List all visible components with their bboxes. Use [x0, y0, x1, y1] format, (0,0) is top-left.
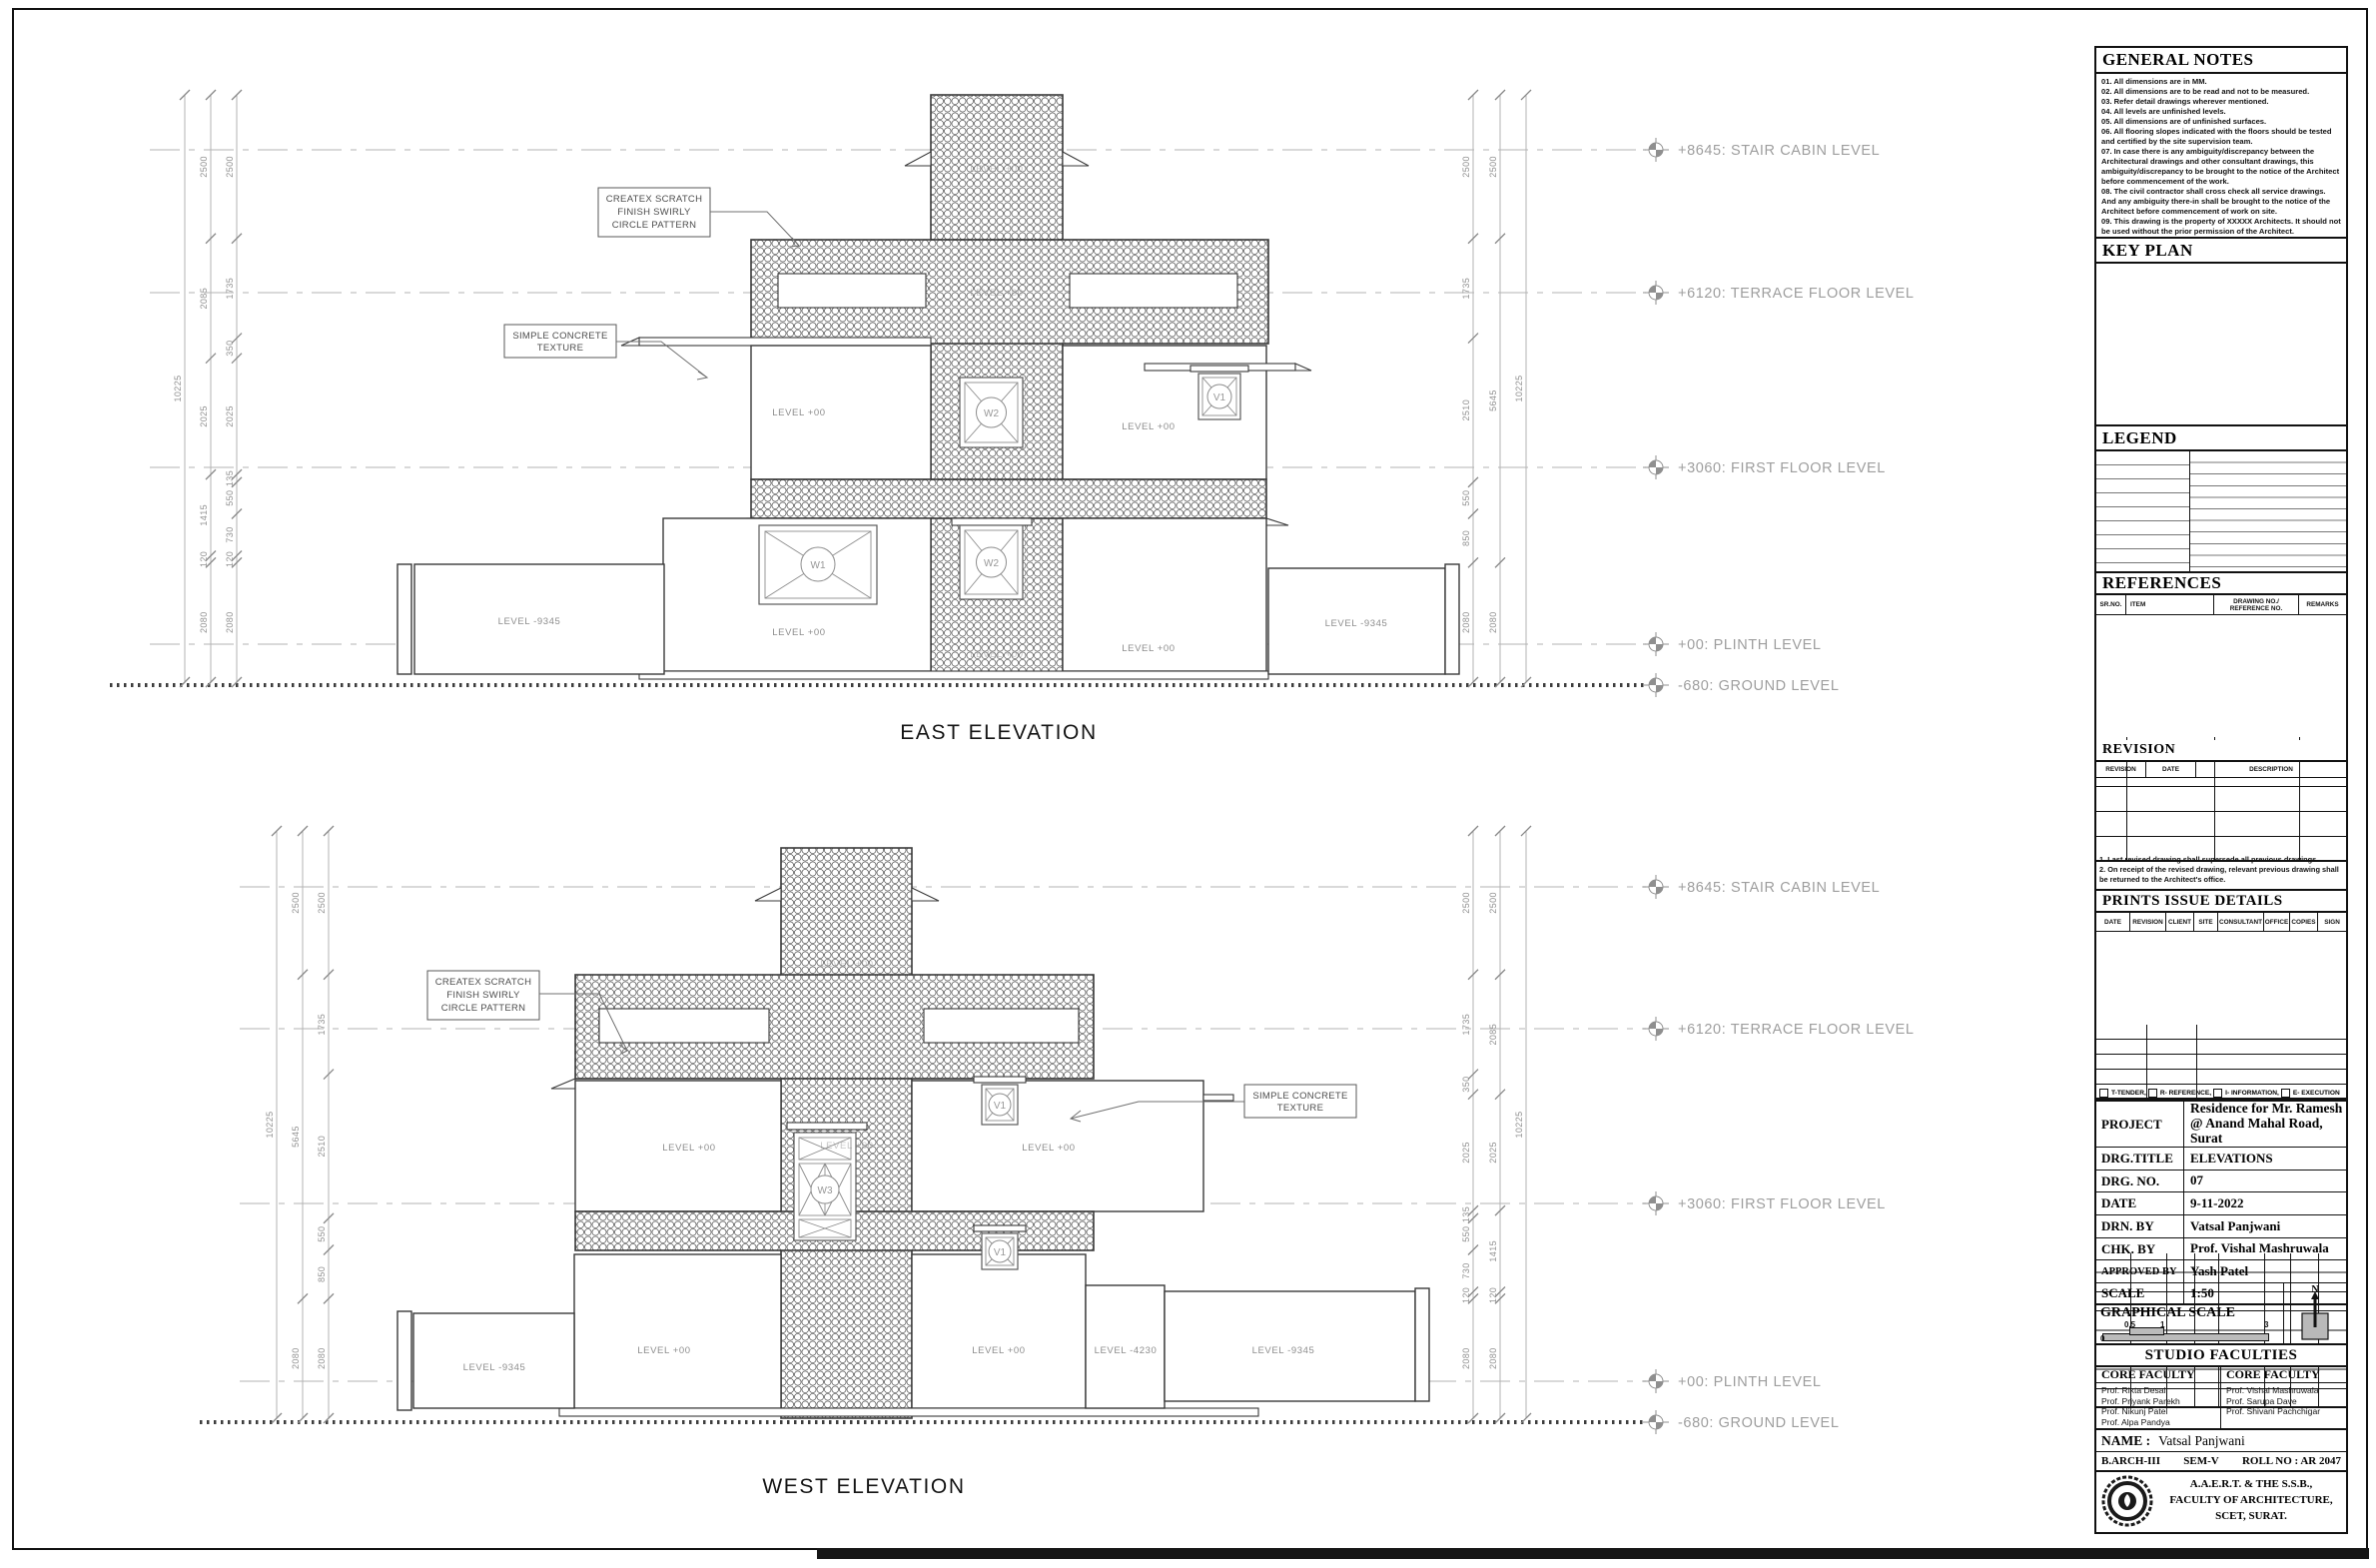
faculty-name: Prof. Sarupa Dave [2226, 1396, 2346, 1407]
section-title: PRINTS ISSUE DETAILS [2102, 893, 2283, 910]
institute-logo [2098, 1473, 2156, 1529]
svg-text:120: 120 [225, 551, 235, 567]
east-level-label: LEVEL +00 [772, 627, 825, 638]
sem-label: SEM-V [2183, 1455, 2218, 1467]
west-level-label: LEVEL +00 [662, 1143, 715, 1154]
field-label: DATE [2096, 1192, 2184, 1214]
drawing-sheet: 10225 25002085202514151202080 2500173535… [0, 0, 2376, 1568]
svg-text:10225: 10225 [265, 1111, 275, 1138]
legend-table [2096, 451, 2346, 573]
note-line: 03. Refer detail drawings wherever menti… [2101, 97, 2342, 107]
col-header: REMARKS [2299, 595, 2346, 614]
svg-text:10225: 10225 [173, 375, 183, 401]
svg-text:550: 550 [225, 490, 235, 506]
project-row: PROJECT Residence for Mr. Ramesh @ Anand… [2096, 1102, 2346, 1148]
west-marker-first-floor: +3060: FIRST FLOOR LEVEL [1643, 1191, 1886, 1215]
svg-text:2510: 2510 [317, 1136, 327, 1158]
studio-faculties-body: CORE FACULTY Prof. Rikta Desai Prof. Pri… [2096, 1367, 2346, 1430]
east-createx-annotation: CREATEX SCRATCH FINISH SWIRLY CIRCLE PAT… [598, 188, 799, 247]
approved-by-row: APPROVED BY Yash Patel [2096, 1260, 2346, 1283]
svg-text:10225: 10225 [1514, 375, 1524, 401]
east-tower-label: LEVEL +00 [970, 649, 1023, 660]
svg-text:2500: 2500 [1488, 156, 1498, 178]
annotation-line: CREATEX SCRATCH [606, 194, 703, 205]
legend-header: LEGEND [2096, 426, 2346, 451]
svg-text:1415: 1415 [199, 504, 209, 526]
execution-checkbox[interactable] [2281, 1089, 2290, 1098]
field-value: 1:50 [2184, 1283, 2284, 1303]
studio-faculties-header: STUDIO FACULTIES [2096, 1345, 2346, 1367]
svg-text:2080: 2080 [1488, 611, 1498, 633]
field-label: DRN. BY [2096, 1215, 2184, 1237]
prints-column-headers: DATE REVISION CLIENT SITE CONSULTANT OFF… [2096, 913, 2346, 932]
east-tower-label: LEVEL +00 [970, 164, 1023, 175]
note-line: be returned to the Architect's office. [2099, 875, 2343, 885]
west-elevation: 10225 250056452080 250017352510550850208… [200, 826, 1915, 1498]
east-dim-right-outer: 10225 [1514, 90, 1531, 687]
col-header: DRAWING NO./ REFERENCE NO. [2214, 595, 2299, 614]
svg-text:2025: 2025 [1461, 1142, 1471, 1164]
west-level-label: LEVEL -9345 [1252, 1345, 1315, 1356]
col-header: ITEM [2126, 595, 2214, 614]
svg-text:350: 350 [1461, 1076, 1471, 1092]
issue-type-row: T-TENDER, R- REFERENCE, I- INFORMATION, … [2096, 1087, 2346, 1102]
annotation-line: CREATEX SCRATCH [435, 977, 532, 988]
note-line: 08. The civil contractor shall cross che… [2101, 187, 2342, 217]
graphical-scale-section: GRAPHICAL SCALE 0 0.5 1 3 N [2096, 1305, 2346, 1345]
west-marker-terrace: +6120: TERRACE FLOOR LEVEL [1643, 1017, 1915, 1041]
field-label: DRG. NO. [2096, 1171, 2184, 1191]
west-tower-label: LEVEL +00 [820, 959, 873, 970]
title-block: GENERAL NOTES 01. All dimensions are in … [2094, 46, 2348, 1534]
note-line: 06. All flooring slopes indicated with t… [2101, 127, 2342, 147]
prints-header: PRINTS ISSUE DETAILS [2096, 891, 2346, 913]
checkbox-label: R- REFERENCE, [2160, 1090, 2211, 1097]
svg-text:1735: 1735 [1461, 1014, 1471, 1036]
svg-text:1735: 1735 [1461, 278, 1471, 300]
west-ground-wall-left [574, 1254, 781, 1408]
institute-line: SCET, SURAT. [2156, 1509, 2346, 1525]
east-lintel-right-end [1266, 518, 1288, 525]
svg-text:+3060: FIRST FLOOR LEVEL: +3060: FIRST FLOOR LEVEL [1678, 1196, 1886, 1212]
elevation-drawings: 10225 25002085202514151202080 2500173535… [0, 0, 2082, 1568]
svg-text:730: 730 [1461, 1262, 1471, 1278]
west-terrace-opening-right [924, 1009, 1079, 1043]
col-header: DATE [2096, 913, 2130, 931]
svg-text:550: 550 [317, 1226, 327, 1242]
field-value: 07 [2184, 1171, 2346, 1191]
faculty-name: Prof. Vishal Mashruwala [2226, 1385, 2346, 1396]
revision-column-headers: REVISION DATE DESCRIPTION [2096, 762, 2346, 778]
svg-text:-680: GROUND LEVEL: -680: GROUND LEVEL [1678, 1415, 1840, 1431]
east-tower-label: LEVEL +00 [970, 288, 1023, 299]
west-terrace-opening-left [599, 1009, 769, 1043]
svg-text:+3060: FIRST FLOOR LEVEL: +3060: FIRST FLOOR LEVEL [1678, 460, 1886, 476]
east-dim-right-mid: 250056452080 [1488, 90, 1505, 687]
references-header: REFERENCES [2096, 573, 2346, 595]
drawn-by-row: DRN. BY Vatsal Panjwani [2096, 1215, 2346, 1238]
north-label: N [2311, 1284, 2318, 1295]
core-faculty-header: CORE FACULTY [2096, 1367, 2220, 1383]
west-dim-right-mid: 25002085202514151202080 [1488, 826, 1505, 1423]
annotation-line: SIMPLE CONCRETE [1252, 1091, 1347, 1102]
east-dim-left-outer: 10225 [173, 90, 190, 687]
east-chajja-left [639, 338, 931, 346]
west-level-label: LEVEL +00 [637, 1345, 690, 1356]
field-label: DRG.TITLE [2096, 1148, 2184, 1170]
east-elevation: 10225 25002085202514151202080 2500173535… [110, 90, 1915, 744]
faculty-name: Prof. Shivani Pachchigar [2226, 1406, 2346, 1417]
section-title: REFERENCES [2102, 573, 2221, 593]
svg-text:550: 550 [1461, 1226, 1471, 1242]
svg-text:2500: 2500 [199, 156, 209, 178]
svg-text:2080: 2080 [1461, 611, 1471, 633]
svg-text:120: 120 [1461, 1287, 1471, 1303]
svg-text:2025: 2025 [199, 405, 209, 427]
svg-text:2500: 2500 [1461, 156, 1471, 178]
field-value: Yash Patel [2184, 1260, 2346, 1282]
west-level-label: LEVEL +00 [1022, 1143, 1075, 1154]
svg-text:+6120: TERRACE FLOOR LEVEL: +6120: TERRACE FLOOR LEVEL [1678, 286, 1915, 302]
east-dim-right-inner: 2500173525105508502080 [1461, 90, 1478, 687]
scale-bar-lower [2102, 1333, 2269, 1341]
institute-row: A.A.E.R.T. & THE S.S.B., FACULTY OF ARCH… [2096, 1472, 2346, 1530]
svg-text:350: 350 [225, 340, 235, 356]
window-tag: W2 [984, 558, 999, 569]
svg-text:120: 120 [1488, 1287, 1498, 1303]
window-tag: V1 [994, 1101, 1007, 1112]
svg-text:10225: 10225 [1514, 1111, 1524, 1138]
col-header: CONSULTANT [2218, 913, 2264, 931]
east-slab-band [751, 479, 1266, 518]
graphical-scale-title: GRAPHICAL SCALE [2100, 1305, 2235, 1321]
west-tower-label: LEVEL +00 [820, 1141, 873, 1152]
east-dim-left-mid: 25002085202514151202080 [199, 90, 216, 687]
west-marker-plinth: +00: PLINTH LEVEL [1643, 1369, 1822, 1393]
general-notes-body: 01. All dimensions are in MM. 02. All di… [2096, 74, 2346, 239]
east-window-w2-lower: W2 [960, 525, 1023, 599]
svg-text:1735: 1735 [225, 278, 235, 300]
col-header: DATE [2146, 762, 2196, 777]
svg-text:2500: 2500 [225, 156, 235, 178]
east-window-v1-upper: V1 [1190, 366, 1248, 419]
scale-tick: 1 [2160, 1320, 2164, 1329]
svg-text:2080: 2080 [1488, 1347, 1498, 1369]
west-level-label: LEVEL -9345 [463, 1362, 526, 1373]
note-line: 07. In case there is any ambiguity/discr… [2101, 147, 2342, 187]
east-dim-left-inner: 2500173535020251355507301202080 [225, 90, 242, 687]
field-value: Residence for Mr. Ramesh @ Anand Mahal R… [2184, 1102, 2346, 1147]
svg-text:2085: 2085 [1488, 1024, 1498, 1046]
svg-text:120: 120 [199, 551, 209, 567]
svg-text:730: 730 [225, 526, 235, 542]
section-title: STUDIO FACULTIES [2145, 1347, 2298, 1364]
east-concrete-annotation: SIMPLE CONCRETE TEXTURE [504, 325, 707, 380]
east-marker-first-floor: +3060: FIRST FLOOR LEVEL [1643, 455, 1886, 479]
course-label: B.ARCH-III [2101, 1455, 2160, 1467]
name-value: Vatsal Panjwani [2158, 1433, 2245, 1449]
west-tower-ledge-right [912, 888, 939, 901]
note-line: 01. All dimensions are in MM. [2101, 77, 2342, 87]
drg-no-row: DRG. NO. 07 [2096, 1171, 2346, 1192]
west-level-label: LEVEL -4230 [1095, 1345, 1158, 1356]
col-header: SR.NO. [2096, 595, 2126, 614]
note-line: 04. All levels are unfinished levels. [2101, 107, 2342, 117]
field-value: 9-11-2022 [2184, 1192, 2346, 1214]
svg-text:+6120: TERRACE FLOOR LEVEL: +6120: TERRACE FLOOR LEVEL [1678, 1022, 1915, 1038]
east-marker-stair-cabin: +8645: STAIR CABIN LEVEL [1643, 138, 1880, 162]
col-header: OFFICE [2264, 913, 2290, 931]
west-dim-right-outer: 10225 [1514, 826, 1531, 1423]
svg-text:850: 850 [1461, 530, 1471, 546]
faculty-name: Prof. Nikunj Patel [2101, 1406, 2220, 1417]
window-tag: W2 [984, 408, 999, 419]
annotation-line: TEXTURE [537, 343, 583, 354]
annotation-line: SIMPLE CONCRETE [512, 331, 607, 342]
checkbox-label: I- INFORMATION, [2225, 1090, 2279, 1097]
east-level-label: LEVEL -9345 [1325, 618, 1388, 629]
note-line: 1. Last revised drawing shall supersede … [2099, 855, 2343, 865]
field-label: APPROVED BY [2096, 1260, 2184, 1282]
east-marker-ground: -680: GROUND LEVEL [1643, 673, 1840, 697]
annotation-line: CIRCLE PATTERN [441, 1003, 526, 1014]
checkbox-label: E- EXECUTION [2293, 1090, 2340, 1097]
west-dim-left-mid: 250056452080 [291, 826, 308, 1423]
west-wing-left [413, 1313, 574, 1408]
col-header: SIGN [2318, 913, 2346, 931]
window-tag: V1 [1213, 392, 1226, 403]
east-level-label: LEVEL +00 [772, 407, 825, 418]
east-tower-ledge-right [1063, 152, 1089, 166]
section-title: GENERAL NOTES [2102, 50, 2254, 70]
revision-header: REVISION [2096, 740, 2346, 762]
tender-checkbox[interactable] [2099, 1089, 2108, 1098]
col-header: REVISION [2130, 913, 2166, 931]
west-dim-left-outer: 10225 [265, 826, 282, 1423]
east-window-w2-upper: W2 [960, 378, 1023, 447]
east-window-w1: W1 [759, 525, 877, 604]
sheet-bottom-bar [817, 1548, 2369, 1559]
svg-text:2080: 2080 [225, 611, 235, 633]
east-base-slab [639, 671, 1268, 679]
note-line: 09. This drawing is the property of XXXX… [2101, 217, 2342, 237]
east-terrace-opening-right [1070, 274, 1237, 308]
east-marker-plinth: +00: PLINTH LEVEL [1643, 632, 1822, 656]
field-value: ELEVATIONS [2184, 1148, 2346, 1170]
reference-checkbox[interactable] [2148, 1089, 2157, 1098]
col-header: REVISION [2096, 762, 2146, 777]
east-ledge-right-end [1295, 364, 1311, 371]
west-marker-ground: -680: GROUND LEVEL [1643, 1410, 1840, 1434]
roll-no: ROLL NO : AR 2047 [2242, 1455, 2341, 1467]
institute-line: A.A.E.R.T. & THE S.S.B., [2156, 1477, 2346, 1493]
key-plan-box [2096, 264, 2346, 426]
west-elevation-title: WEST ELEVATION [762, 1475, 965, 1498]
scale-tick: 3 [2264, 1320, 2268, 1329]
east-tower-ledge-left [905, 152, 931, 166]
checkbox-label: T-TENDER, [2111, 1090, 2146, 1097]
batch-row: B.ARCH-III SEM-V ROLL NO : AR 2047 [2096, 1452, 2346, 1472]
annotation-line: TEXTURE [1277, 1103, 1323, 1114]
svg-text:2080: 2080 [199, 611, 209, 633]
key-plan-header: KEY PLAN [2096, 239, 2346, 264]
scale-tick: 0 [2100, 1334, 2104, 1343]
svg-text:2500: 2500 [1461, 892, 1471, 914]
svg-text:2025: 2025 [225, 405, 235, 427]
field-label: PROJECT [2096, 1102, 2184, 1147]
annotation-line: CIRCLE PATTERN [612, 220, 697, 231]
west-ledge-right [1203, 1095, 1233, 1101]
window-tag: W1 [811, 560, 826, 571]
general-notes-header: GENERAL NOTES [2096, 48, 2346, 74]
west-dim-left-inner: 2500173525105508502080 [317, 826, 334, 1423]
note-line: 2. On receipt of the revised drawing, re… [2099, 865, 2343, 875]
name-label: NAME : [2101, 1433, 2150, 1449]
name-row: NAME : Vatsal Panjwani [2096, 1430, 2346, 1452]
field-label: SCALE [2096, 1283, 2184, 1303]
west-dim-right-inner: 2500173535020251355507301202080 [1461, 826, 1478, 1423]
col-header: DESCRIPTION [2196, 762, 2346, 777]
checked-by-row: CHK. BY Prof. Vishal Mashruwala [2096, 1238, 2346, 1260]
svg-text:2085: 2085 [199, 288, 209, 310]
svg-text:+00: PLINTH LEVEL: +00: PLINTH LEVEL [1678, 637, 1822, 653]
col-header: COPIES [2290, 913, 2318, 931]
field-value: Prof. Vishal Mashruwala [2184, 1238, 2346, 1259]
svg-text:2025: 2025 [1488, 1142, 1498, 1164]
svg-text:550: 550 [1461, 490, 1471, 506]
information-checkbox[interactable] [2213, 1089, 2222, 1098]
col-header: CLIENT [2166, 913, 2194, 931]
svg-text:2500: 2500 [291, 892, 301, 914]
svg-text:-680: GROUND LEVEL: -680: GROUND LEVEL [1678, 678, 1840, 694]
west-tower-ledge-left [755, 888, 781, 901]
svg-text:+00: PLINTH LEVEL: +00: PLINTH LEVEL [1678, 1374, 1822, 1390]
east-elevation-title: EAST ELEVATION [900, 721, 1097, 744]
west-chajja-left-end [551, 1079, 575, 1089]
section-title: LEGEND [2102, 428, 2177, 448]
west-base-slab [559, 1408, 1258, 1416]
svg-text:1415: 1415 [1488, 1240, 1498, 1262]
field-value: Vatsal Panjwani [2184, 1215, 2346, 1237]
references-column-headers: SR.NO. ITEM DRAWING NO./ REFERENCE NO. R… [2096, 595, 2346, 615]
institute-line: FACULTY OF ARCHITECTURE, [2156, 1493, 2346, 1509]
drg-title-row: DRG.TITLE ELEVATIONS [2096, 1148, 2346, 1171]
faculty-name: Prof. Priyank Parekh [2101, 1396, 2220, 1407]
window-tag: V1 [994, 1247, 1007, 1258]
east-wing-left-post [397, 564, 411, 674]
note-line: 05. All dimensions are of unfinished sur… [2101, 117, 2342, 127]
west-wing-right-post [1415, 1288, 1429, 1401]
svg-text:+8645: STAIR CABIN LEVEL: +8645: STAIR CABIN LEVEL [1678, 143, 1880, 159]
section-title: KEY PLAN [2102, 241, 2193, 261]
svg-text:1735: 1735 [317, 1014, 327, 1036]
svg-text:2080: 2080 [1461, 1347, 1471, 1369]
date-row: DATE 9-11-2022 [2096, 1192, 2346, 1215]
svg-text:135: 135 [1461, 1206, 1471, 1222]
west-level-label: LEVEL +00 [972, 1345, 1025, 1356]
field-label: CHK. BY [2096, 1238, 2184, 1259]
window-tag: W3 [818, 1185, 833, 1196]
east-wing-right-post [1445, 564, 1459, 674]
east-level-label: LEVEL +00 [1122, 421, 1175, 432]
annotation-line: FINISH SWIRLY [617, 207, 691, 218]
revision-notes: 1. Last revised drawing shall supersede … [2096, 853, 2346, 891]
svg-text:2510: 2510 [1461, 399, 1471, 421]
west-ground-wall-right [912, 1254, 1086, 1408]
east-level-label: LEVEL +00 [1122, 643, 1175, 654]
svg-text:2500: 2500 [1488, 892, 1498, 914]
annotation-line: FINISH SWIRLY [446, 990, 520, 1001]
north-box: N [2283, 1283, 2346, 1345]
svg-text:850: 850 [317, 1266, 327, 1282]
svg-text:2080: 2080 [317, 1347, 327, 1369]
section-title: REVISION [2102, 742, 2175, 758]
east-lintel-w2 [952, 518, 1032, 525]
faculty-name: Prof. Alpa Pandya [2101, 1417, 2220, 1428]
east-terrace-opening-left [778, 274, 926, 308]
faculty-name: Prof. Rikta Desai [2101, 1385, 2220, 1396]
east-level-label: LEVEL -9345 [498, 616, 561, 627]
west-marker-stair-cabin: +8645: STAIR CABIN LEVEL [1643, 875, 1880, 899]
svg-text:5645: 5645 [291, 1126, 301, 1148]
svg-text:+8645: STAIR CABIN LEVEL: +8645: STAIR CABIN LEVEL [1678, 880, 1880, 896]
svg-text:2500: 2500 [317, 892, 327, 914]
west-wing-left-post [397, 1311, 411, 1410]
svg-text:2080: 2080 [291, 1347, 301, 1369]
core-faculty-header: CORE FACULTY [2221, 1367, 2346, 1383]
note-line: 02. All dimensions are to be read and no… [2101, 87, 2342, 97]
scale-tick: 0.5 [2124, 1320, 2135, 1329]
svg-text:5645: 5645 [1488, 390, 1498, 411]
col-header: SITE [2194, 913, 2218, 931]
east-marker-terrace: +6120: TERRACE FLOOR LEVEL [1643, 281, 1915, 305]
svg-text:135: 135 [225, 470, 235, 486]
